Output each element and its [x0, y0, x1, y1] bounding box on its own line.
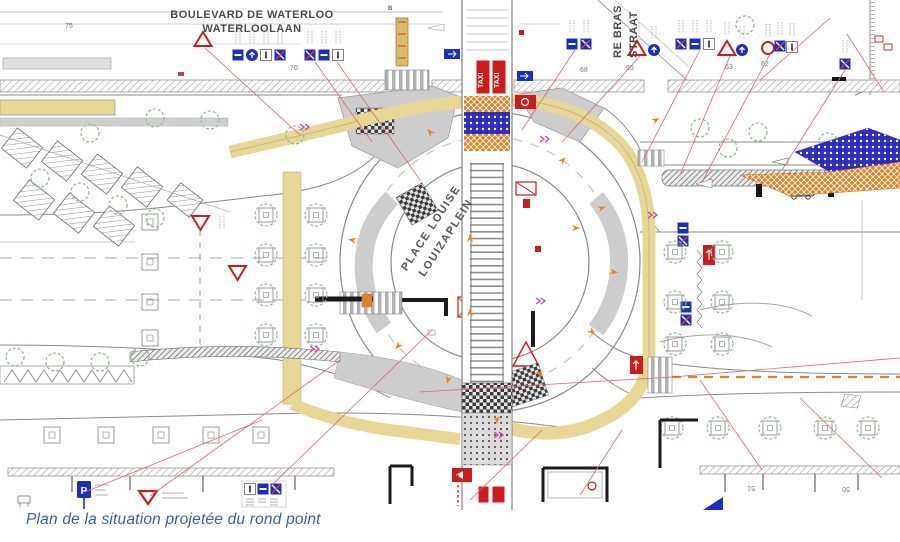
- street-number: 75: [65, 23, 73, 30]
- taxi-zone-label: TAXI: [494, 73, 501, 88]
- blue-square-sign-icon: [581, 39, 592, 50]
- white-square-sign-icon: [261, 50, 272, 61]
- blue-circle-sign-icon: [246, 49, 258, 61]
- blue-square-sign-icon: [319, 50, 330, 61]
- side-street-name-fr: RE BRAS: [612, 5, 624, 58]
- street-number: 65: [626, 65, 634, 72]
- blue-square-sign-icon: [233, 50, 244, 61]
- work-zone-orange: [464, 96, 510, 112]
- bus-stop-label: B: [388, 6, 393, 12]
- work-zone-orange: [464, 134, 510, 151]
- street-number: 70: [290, 65, 298, 72]
- blue-square-sign-icon: [275, 50, 286, 61]
- white-square-sign-icon: [704, 39, 715, 50]
- blue-circle-sign-icon: [736, 44, 748, 56]
- street-number-flipped: 51: [747, 484, 755, 491]
- blue-square-sign-icon: [690, 39, 701, 50]
- sign-cluster: [242, 481, 286, 507]
- blue-circle-sign-icon: [648, 44, 660, 56]
- white-square-sign-icon: [333, 50, 344, 61]
- work-zone-blue: [464, 112, 510, 134]
- boulevard-name-fr: BOULEVARD DE WATERLOO: [170, 9, 333, 21]
- street-number: 63: [725, 64, 733, 71]
- roadworks-plan-drawing: TAXI TAXI: [0, 0, 900, 510]
- bus-stop-strip: [396, 18, 408, 66]
- street-number: 62: [761, 61, 769, 68]
- blue-square-sign-icon: [840, 59, 851, 70]
- blue-square-sign-icon: [676, 39, 687, 50]
- street-number-flipped: 50: [842, 485, 850, 492]
- warning-triangle-sign-icon: [719, 41, 736, 55]
- blue-square-sign-icon: [305, 50, 316, 61]
- white-square-sign-icon: [787, 42, 798, 53]
- parking-sign-icon: P: [77, 481, 109, 509]
- yield-sign-icon: [192, 216, 209, 230]
- guardrail-zigzag: [697, 250, 702, 328]
- yield-sign-icon: [229, 266, 246, 280]
- blue-square-sign-icon: [775, 41, 786, 52]
- plan-canvas: TAXI TAXI: [0, 0, 900, 542]
- street-number: 68: [580, 67, 588, 74]
- buildings-left-block: [0, 128, 230, 246]
- side-street-name-nl: STRAAT: [628, 11, 640, 58]
- blue-square-sign-icon: [567, 39, 578, 50]
- yield-sign-icon: [139, 491, 188, 504]
- no-entry-red-circle-sign-icon: [762, 42, 774, 54]
- taxi-zone-label: TAXI: [478, 73, 485, 88]
- boulevard-name-nl: WATERLOOLAAN: [202, 23, 301, 35]
- north-wedge-icon: [703, 497, 723, 510]
- plan-caption: Plan de la situation projetée du rond po…: [26, 511, 321, 529]
